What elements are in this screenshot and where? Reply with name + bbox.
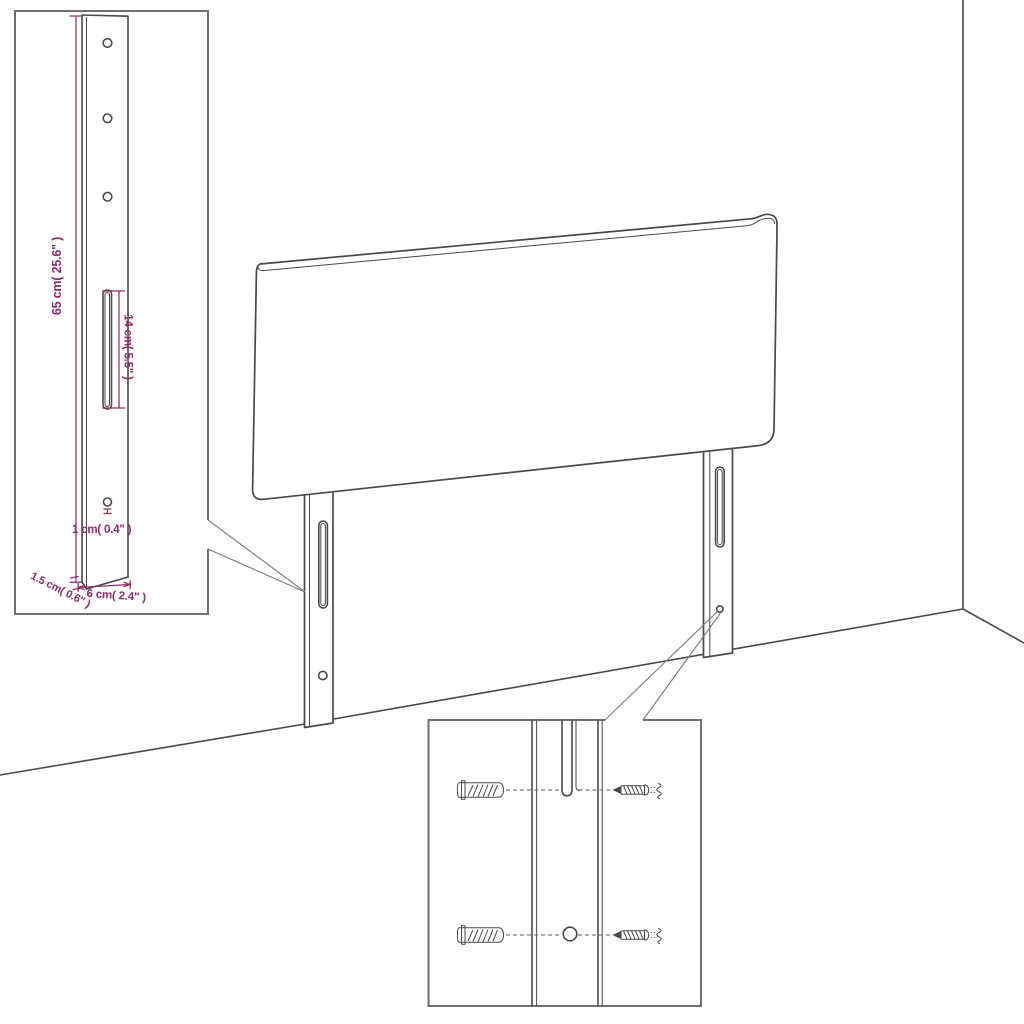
dimension-label-thickness: 1.5 cm( 0.6" ) [28, 570, 92, 611]
headboard-panel [253, 214, 777, 499]
dimension-label-hole: 1 cm( 0.4" ) [72, 524, 132, 536]
bracket-hole [103, 114, 112, 123]
leg-strip-front-view [532, 720, 602, 1006]
bracket-drawing [82, 15, 128, 589]
dimension-thickness: 1.5 cm( 0.6" ) [28, 570, 92, 611]
bracket-slot [103, 290, 112, 409]
dimension-slot-length: 14 cm( 5.5" ) [103, 291, 134, 408]
dimension-label-height: 65 cm( 25.6" ) [50, 237, 64, 315]
floor-line-left [0, 609, 963, 775]
bracket-hole [103, 192, 112, 201]
strip-slot [562, 720, 572, 796]
wall-plug-icon [457, 926, 503, 944]
hardware-inset-leader [643, 613, 721, 720]
bracket-detail-inset: 65 cm( 25.6" ) 14 cm( 5.5" ) 1 cm( 0.4" … [15, 11, 208, 614]
dimension-height: 65 cm( 25.6" ) [50, 16, 82, 582]
floor-line-right [963, 609, 1024, 643]
hardware-detail-inset [429, 720, 702, 1006]
diagram-canvas: 65 cm( 25.6" ) 14 cm( 5.5" ) 1 cm( 0.4" … [0, 0, 1024, 1024]
screw-icon [613, 929, 662, 944]
wall-plug-icon [457, 781, 503, 799]
dimension-hole-diameter: 1 cm( 0.4" ) [72, 509, 132, 536]
bracket-hole [103, 39, 112, 48]
leader-lines [208, 520, 721, 720]
hardware-inset-leader [605, 612, 718, 721]
dimension-label-width: 6 cm( 2.4" ) [86, 588, 146, 604]
alignment-dashed-lines [506, 790, 611, 935]
product-dimension-diagram: 65 cm( 25.6" ) 14 cm( 5.5" ) 1 cm( 0.4" … [0, 0, 1024, 1024]
screw-icon [613, 784, 662, 799]
inset-border [429, 720, 702, 1006]
headboard-right-leg [704, 444, 733, 658]
bracket-bottom-hole [104, 498, 112, 506]
dimension-label-slot: 14 cm( 5.5" ) [122, 314, 134, 380]
